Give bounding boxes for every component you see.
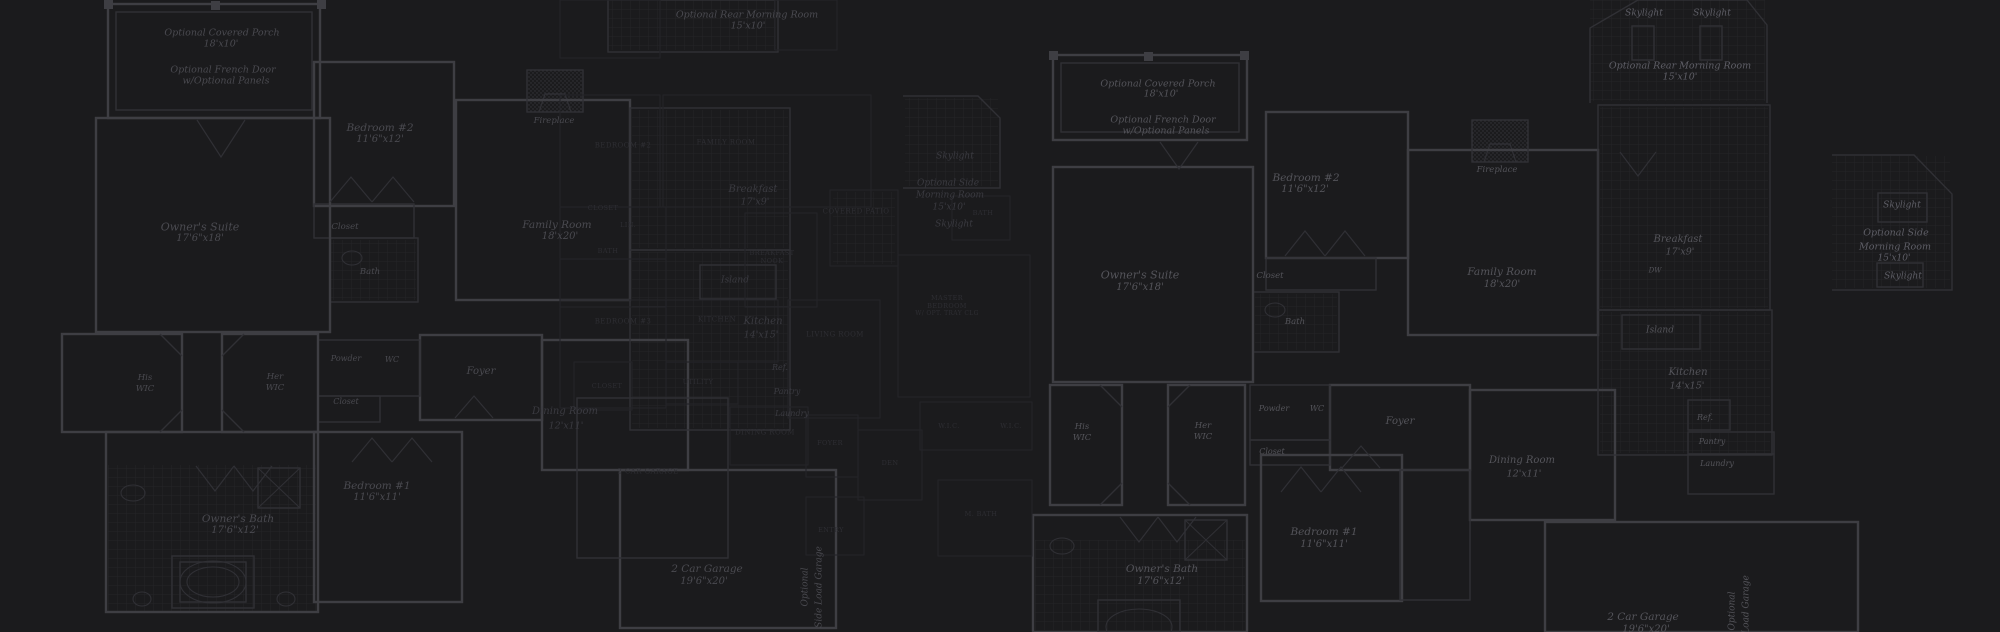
room-label: 2 Car Garage: [671, 564, 743, 575]
room-label: Closet: [331, 223, 358, 232]
room-label: Skylight: [1693, 10, 1731, 19]
room-label: Bedroom #1: [1290, 527, 1357, 538]
room-label: 2 CAR GARAGE: [617, 469, 678, 476]
room-label: LIN.: [620, 222, 636, 229]
room-label: 14'x15': [744, 330, 779, 340]
room-label: MASTER: [931, 295, 963, 302]
room-label: BREAKFAST: [750, 250, 795, 257]
room-label: Pantry: [1699, 438, 1726, 446]
room-label: Closet: [1259, 448, 1285, 456]
room-label: Skylight: [936, 153, 974, 162]
room-label: KITCHEN: [698, 317, 736, 324]
room-label: WIC: [1194, 433, 1213, 442]
room-label: 15'x10': [731, 21, 766, 31]
room-label: 11'6"x11': [353, 493, 401, 503]
room-label: BATH: [973, 210, 994, 217]
room-label: 15'x10': [1878, 255, 1911, 264]
room-label: 17'6"x18': [176, 234, 224, 244]
room-label: 18'x10': [204, 39, 239, 49]
room-label: 12'x11': [1507, 469, 1542, 479]
room-label: Bedroom #1: [343, 481, 410, 492]
room-label: Breakfast: [729, 185, 778, 195]
room-label: WIC: [136, 385, 155, 394]
room-label: Owner's Bath: [1126, 564, 1198, 575]
room-label: 12'x11': [549, 421, 584, 431]
room-label: Optional: [1729, 591, 1738, 630]
room-label: FOYER: [817, 440, 843, 447]
room-label: 18'x20': [1484, 280, 1521, 290]
room-label: Skylight: [1625, 10, 1663, 19]
room-label: Ref.: [772, 364, 788, 372]
room-label: Closet: [333, 398, 359, 406]
room-label: 11'6"x12': [1281, 185, 1329, 195]
room-label: DW: [1649, 268, 1662, 275]
room-label: WC: [385, 356, 399, 364]
room-label: M. BATH: [965, 511, 998, 518]
room-label: BEDROOM: [927, 303, 967, 310]
floorplan-labels: Optional Covered Porch18'x10'Optional Fr…: [0, 0, 2000, 632]
room-label: Morning Room: [916, 192, 984, 201]
room-label: Ref.: [1697, 414, 1713, 422]
room-label: FAMILY ROOM: [697, 140, 756, 147]
room-label: 19'6"x20': [680, 577, 728, 587]
room-label: Optional: [802, 567, 811, 606]
room-label: His: [1075, 423, 1090, 432]
room-label: 19'6"x20': [1622, 625, 1670, 632]
room-label: BATH: [598, 248, 619, 255]
room-label: Family Room: [522, 220, 591, 231]
room-label: Powder: [331, 355, 361, 363]
room-label: CLOSET: [588, 205, 619, 212]
room-label: UTILITY: [683, 379, 714, 386]
room-label: COVERED PATIO: [823, 209, 890, 216]
room-label: Morning Room: [1859, 242, 1931, 252]
room-label: 2 Car Garage: [1607, 612, 1679, 623]
room-label: w/Optional Panels: [183, 76, 270, 86]
room-label: 17'6"x12': [1137, 577, 1185, 587]
room-label: Skylight: [935, 221, 973, 230]
room-label: Family Room: [1467, 267, 1536, 278]
room-label: Side Load Garage: [816, 546, 825, 628]
room-label: Foyer: [467, 367, 496, 377]
room-label: 17'x9': [1666, 247, 1695, 257]
room-label: 18'x10': [1144, 89, 1179, 99]
room-label: LIVING ROOM: [806, 332, 864, 339]
room-label: Skylight: [1883, 202, 1921, 211]
room-label: W.I.C.: [938, 423, 959, 430]
room-label: Owner's Bath: [202, 514, 274, 525]
room-label: 14'x15': [1670, 381, 1705, 391]
room-label: ENTRY: [818, 527, 844, 534]
room-label: Bath: [1285, 318, 1305, 327]
room-label: Pantry: [774, 388, 801, 396]
room-label: 18'x20': [542, 232, 579, 242]
room-label: Optional Rear Morning Room: [1609, 61, 1751, 71]
room-label: W.I.C.: [1000, 423, 1021, 430]
room-label: BEDROOM #3: [595, 319, 652, 326]
room-label: Optional Covered Porch: [164, 28, 279, 38]
room-label: Her: [267, 373, 284, 382]
room-label: His: [138, 374, 153, 383]
room-label: Dining Room: [1489, 456, 1555, 466]
room-label: Foyer: [1386, 417, 1415, 427]
room-label: Skylight: [1884, 273, 1922, 282]
room-label: Laundry: [1700, 460, 1734, 468]
room-label: Bedroom #2: [346, 123, 413, 134]
room-label: Optional French Door: [170, 65, 275, 75]
floorplan-backdrop: Optional Covered Porch18'x10'Optional Fr…: [0, 0, 2000, 632]
room-label: CLOSET: [592, 383, 623, 390]
room-label: Optional Covered Porch: [1100, 79, 1215, 89]
room-label: 17'x9': [741, 197, 770, 207]
room-label: Bedroom #2: [1272, 173, 1339, 184]
room-label: Powder: [1259, 405, 1289, 413]
room-label: Optional Rear Morning Room: [676, 10, 818, 20]
room-label: Owner's Suite: [161, 222, 240, 233]
room-label: Her: [1195, 422, 1212, 431]
room-label: Laundry: [775, 410, 809, 418]
room-label: 11'6"x11': [1300, 540, 1348, 550]
room-label: Optional Side: [1863, 228, 1929, 238]
room-label: Kitchen: [1668, 368, 1707, 378]
room-label: w/Optional Panels: [1123, 126, 1210, 136]
room-label: WIC: [1073, 434, 1092, 443]
room-label: 17'6"x18': [1116, 283, 1164, 293]
room-label: Kitchen: [743, 317, 782, 327]
room-label: WC: [1310, 405, 1324, 413]
room-label: W/ OPT. TRAY CLG: [915, 311, 979, 317]
room-label: WIC: [266, 384, 285, 393]
room-label: Breakfast: [1654, 235, 1703, 245]
room-label: 17'6"x12': [211, 526, 259, 536]
room-label: Island: [721, 277, 749, 286]
room-label: 15'x10': [1663, 72, 1698, 82]
room-label: Fireplace: [1477, 166, 1518, 175]
room-label: DEN: [882, 460, 899, 467]
room-label: Optional French Door: [1110, 115, 1215, 125]
room-label: 15'x10': [933, 204, 966, 213]
room-label: Side Load Garage: [1743, 575, 1752, 632]
room-label: 11'6"x12': [356, 135, 404, 145]
room-label: DINING ROOM: [735, 430, 795, 437]
room-label: Optional Side: [917, 180, 979, 189]
room-label: Island: [1646, 327, 1674, 336]
room-label: NOOK: [761, 258, 784, 265]
room-label: Owner's Suite: [1101, 270, 1180, 281]
room-label: Closet: [1256, 272, 1283, 281]
room-label: Fireplace: [534, 117, 575, 126]
room-label: Bath: [360, 268, 380, 277]
room-label: Dining Room: [532, 407, 598, 417]
room-label: BEDROOM #2: [595, 143, 652, 150]
